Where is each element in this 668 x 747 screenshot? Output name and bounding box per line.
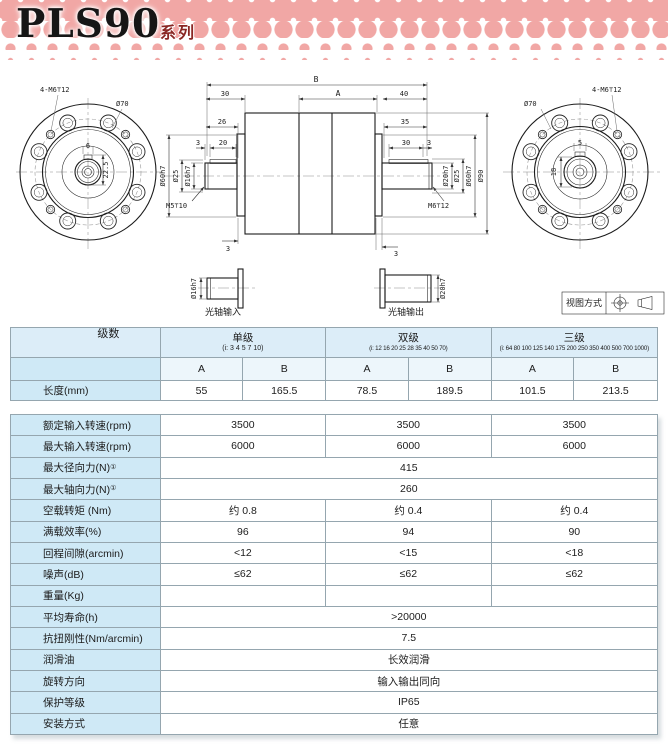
dim-label: Ø20h7 xyxy=(439,278,447,299)
row-label: 空载转矩 (Nm) xyxy=(11,500,161,520)
table-row: 最大输入转速(rpm)600060006000 xyxy=(11,436,657,457)
row-label: 润滑油 xyxy=(11,650,161,670)
dim-label: 26 xyxy=(218,118,226,126)
bolt-hole xyxy=(540,132,545,137)
spec-value: <15 xyxy=(326,543,491,563)
dim-label: 30 xyxy=(221,90,229,98)
row-label: 最大输入转速(rpm) xyxy=(11,436,161,456)
view-method-box: 视图方式 xyxy=(562,292,664,314)
dim-label: M5⊤10 xyxy=(166,202,187,210)
spec-value: 任意 xyxy=(161,714,657,734)
subcol-header: A xyxy=(326,358,409,380)
input-shaft-caption: 光轴输入 xyxy=(205,306,241,317)
input-shaft-detail: Ø16h7 光轴输入 xyxy=(190,269,256,317)
bolt-hole xyxy=(624,147,634,157)
spec-value: 6000 xyxy=(161,436,326,456)
series-badge: 系列 xyxy=(160,19,196,43)
dim-label: M6⊤12 xyxy=(428,202,449,210)
bolt-hole xyxy=(621,144,637,160)
spec-value: 6000 xyxy=(326,436,491,456)
group-name: 双级 xyxy=(398,332,419,345)
dim-label: 4-M6⊤12 xyxy=(40,86,70,94)
spec-value xyxy=(492,586,657,606)
row-label: 旋转方向 xyxy=(11,671,161,691)
technical-drawing: 4-M6⊤12 Ø70 6 22.5 4 xyxy=(0,60,668,325)
page-title: PLS90 xyxy=(16,2,160,46)
dim-label: 4-M6⊤12 xyxy=(592,86,622,94)
table-row: 安装方式任意 xyxy=(11,714,657,734)
spec-value: 7.5 xyxy=(161,628,657,648)
subcol-header: B xyxy=(243,358,326,380)
group-ratios: (i: 12 16 20 25 28 35 40 50 70) xyxy=(369,345,447,353)
table-row: 空载转矩 (Nm)约 0.8约 0.4约 0.4 xyxy=(11,500,657,521)
spec-value xyxy=(161,586,326,606)
table-row: 噪声(dB)≤62≤62≤62 xyxy=(11,564,657,585)
spec-value: 约 0.4 xyxy=(492,500,657,520)
table-row: 长度(mm)55165.578.5189.5101.5213.5 xyxy=(11,381,657,400)
table-row: 抗扭刚性(Nm/arcmin)7.5 xyxy=(11,628,657,649)
row-label: 长度(mm) xyxy=(11,381,161,400)
row-label: 满载效率(%) xyxy=(11,522,161,542)
subcol-header: A xyxy=(161,358,244,380)
row-label: 噪声(dB) xyxy=(11,564,161,584)
table-row: ABABAB xyxy=(11,358,657,381)
bolt-hole xyxy=(60,213,76,229)
spec-value: 3500 xyxy=(326,415,491,435)
dim-label: Ø70 xyxy=(116,100,129,108)
spec-value: >20000 xyxy=(161,607,657,627)
bolt-hole xyxy=(538,130,546,138)
table-row: 满载效率(%)969490 xyxy=(11,522,657,543)
row-label: 回程间隙(arcmin) xyxy=(11,543,161,563)
row-label: 安装方式 xyxy=(11,714,161,734)
dimension-table: 级数单级(i: 3 4 5 7 10)双级(i: 12 16 20 25 28 … xyxy=(10,327,658,401)
group-name: 三级 xyxy=(564,332,585,345)
spec-value: 415 xyxy=(161,458,657,478)
left-flange-view: 4-M6⊤12 Ø70 6 22.5 xyxy=(16,86,163,250)
dim-label: 20 xyxy=(219,139,227,147)
dim-label: 3 xyxy=(196,139,200,147)
view-method-label: 视图方式 xyxy=(566,297,602,308)
spec-value: 90 xyxy=(492,522,657,542)
table-row: 回程间隙(arcmin)<12<15<18 xyxy=(11,543,657,564)
dim-label: 3 xyxy=(226,245,230,253)
side-view: B 30 A 40 26 35 3 20 xyxy=(159,75,489,258)
dim-label: 30 xyxy=(402,139,410,147)
group-ratios: (i: 3 4 5 7 10) xyxy=(222,345,263,354)
length-value: 55 xyxy=(161,381,244,400)
length-value: 78.5 xyxy=(326,381,409,400)
bolt-hole xyxy=(121,130,129,138)
bolt-hole xyxy=(123,132,128,137)
spec-table: 额定输入转速(rpm)350035003500最大输入转速(rpm)600060… xyxy=(10,414,658,735)
halftone-strip xyxy=(0,50,668,60)
bolt-hole xyxy=(48,132,53,137)
spec-value: 约 0.4 xyxy=(326,500,491,520)
group-header: 单级(i: 3 4 5 7 10) xyxy=(161,328,326,357)
spec-value: 3500 xyxy=(161,415,326,435)
dim-label: Ø70 xyxy=(524,100,537,108)
table-row: 最大轴向力(N)①260 xyxy=(11,479,657,500)
row-label: 最大径向力(N)① xyxy=(11,458,161,478)
length-value: 101.5 xyxy=(492,381,575,400)
dim-label: Ø60h7 xyxy=(465,165,473,186)
table-row: 重量(Kg) xyxy=(11,586,657,607)
spec-value xyxy=(326,586,491,606)
dim-label: A xyxy=(336,89,341,98)
spec-value: 约 0.8 xyxy=(161,500,326,520)
bolt-hole xyxy=(63,216,73,226)
bolt-hole xyxy=(613,130,621,138)
table-row: 额定输入转速(rpm)350035003500 xyxy=(11,415,657,436)
dim-label: Ø25 xyxy=(453,170,461,183)
bolt-hole xyxy=(31,144,47,160)
bolt-hole xyxy=(132,147,142,157)
subcol-header: B xyxy=(574,358,657,380)
table-row: 平均寿命(h)>20000 xyxy=(11,607,657,628)
dim-label: B xyxy=(314,75,319,84)
subcol-header: A xyxy=(492,358,575,380)
spec-value: ≤62 xyxy=(492,564,657,584)
row-label: 额定输入转速(rpm) xyxy=(11,415,161,435)
row-label: 保护等级 xyxy=(11,692,161,712)
output-shaft-detail: Ø20h7 光轴输出 xyxy=(374,269,447,317)
dim-label: 6 xyxy=(86,142,90,150)
group-ratios: (i: 64 80 100 125 140 175 200 250 350 40… xyxy=(500,345,649,353)
spec-value: 6000 xyxy=(492,436,657,456)
spec-value: 长效润滑 xyxy=(161,650,657,670)
spec-value: <18 xyxy=(492,543,657,563)
datasheet-page: PLS90 系列 4-M6⊤12 Ø70 xyxy=(0,0,668,747)
table-row: 旋转方向输入输出同向 xyxy=(11,671,657,692)
row-label: 平均寿命(h) xyxy=(11,607,161,627)
dim-label: 18 xyxy=(550,168,558,176)
table-row: 级数单级(i: 3 4 5 7 10)双级(i: 12 16 20 25 28 … xyxy=(11,328,657,358)
bolt-hole xyxy=(523,144,539,160)
dim-label: 40 xyxy=(400,90,408,98)
length-value: 165.5 xyxy=(243,381,326,400)
spec-value: 96 xyxy=(161,522,326,542)
bolt-hole xyxy=(555,216,565,226)
stage-header-spacer xyxy=(11,358,161,380)
spec-value: 输入输出同向 xyxy=(161,671,657,691)
dim-label: 3 xyxy=(394,250,398,258)
right-flange-view: 4-M6⊤12 Ø70 5 18 xyxy=(503,86,660,250)
row-label: 抗扭刚性(Nm/arcmin) xyxy=(11,628,161,648)
spec-value: <12 xyxy=(161,543,326,563)
length-value: 213.5 xyxy=(574,381,657,400)
dim-label: Ø16h7 xyxy=(184,165,192,186)
dim-label: Ø16h7 xyxy=(190,278,198,299)
row-label: 最大轴向力(N)① xyxy=(11,479,161,499)
dim-label: Ø25 xyxy=(172,170,180,183)
row-label: 重量(Kg) xyxy=(11,586,161,606)
dim-label: Ø20h7 xyxy=(442,165,450,186)
group-header: 双级(i: 12 16 20 25 28 35 40 50 70) xyxy=(326,328,491,357)
bolt-hole xyxy=(526,147,536,157)
group-header: 三级(i: 64 80 100 125 140 175 200 250 350 … xyxy=(492,328,657,357)
spec-value: IP65 xyxy=(161,692,657,712)
header-banner: PLS90 系列 xyxy=(0,0,668,60)
bolt-hole xyxy=(552,213,568,229)
spec-value: 94 xyxy=(326,522,491,542)
table-row: 保护等级IP65 xyxy=(11,692,657,713)
dim-label: 22.5 xyxy=(102,162,110,179)
spec-value: ≤62 xyxy=(161,564,326,584)
stage-header: 级数 xyxy=(11,328,161,357)
dim-label: Ø60h7 xyxy=(159,165,167,186)
output-shaft-caption: 光轴输出 xyxy=(388,306,424,317)
table-row: 最大径向力(N)①415 xyxy=(11,458,657,479)
bolt-hole xyxy=(34,147,44,157)
bolt-hole xyxy=(129,144,145,160)
bolt-hole xyxy=(615,132,620,137)
spec-value: 260 xyxy=(161,479,657,499)
dim-label: 5 xyxy=(578,139,582,147)
bolt-hole xyxy=(46,130,54,138)
dim-label: 35 xyxy=(401,118,409,126)
group-name: 单级 xyxy=(232,332,253,345)
dim-label: 3 xyxy=(427,139,431,147)
dim-label: Ø90 xyxy=(477,170,485,183)
length-value: 189.5 xyxy=(409,381,492,400)
projection-target-icon xyxy=(611,294,629,312)
subcol-header: B xyxy=(409,358,492,380)
projection-cone-icon xyxy=(638,297,652,310)
spec-value: 3500 xyxy=(492,415,657,435)
table-row: 润滑油长效润滑 xyxy=(11,650,657,671)
spec-value: ≤62 xyxy=(326,564,491,584)
